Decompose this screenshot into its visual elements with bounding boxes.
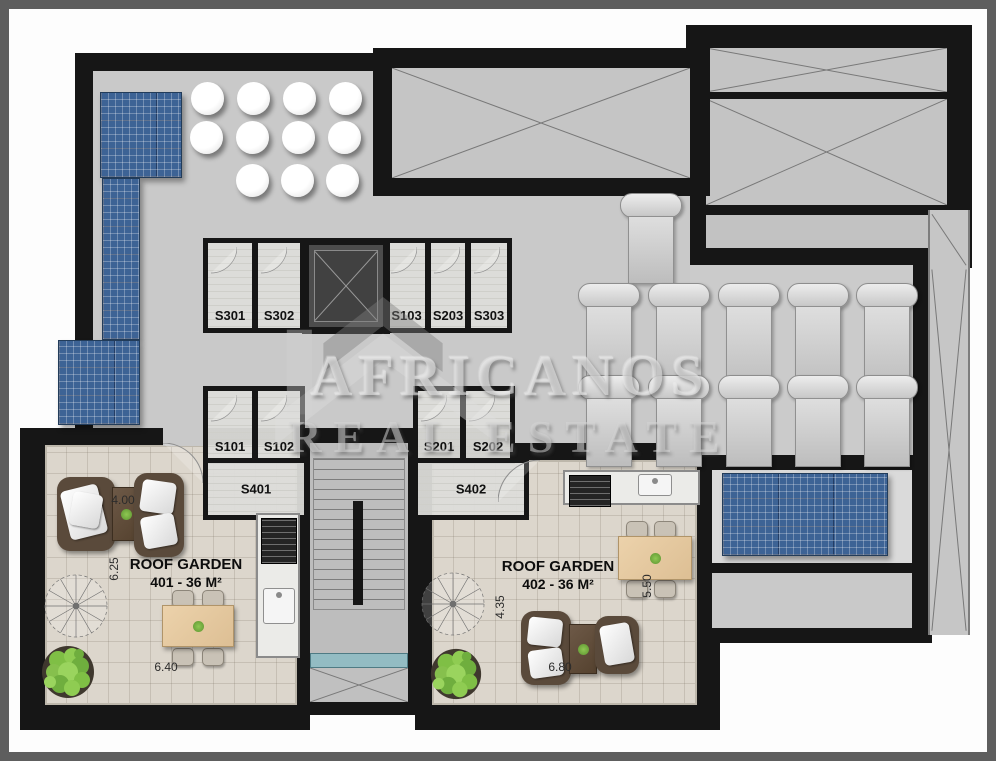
- solar-panel: [722, 473, 888, 556]
- storage-room-s101: S101: [203, 386, 257, 464]
- garden-401-title: ROOF GARDEN 401 - 36 M²: [116, 556, 256, 591]
- solar-panel: [102, 178, 140, 340]
- armchair: [595, 616, 639, 674]
- round-planter: [283, 82, 316, 115]
- sun-lounger: [578, 283, 640, 387]
- room-label: S301: [208, 308, 252, 323]
- elevator-shaft: [302, 238, 390, 334]
- glass-canopy: [310, 653, 408, 668]
- round-planter: [236, 121, 269, 154]
- bbq-grill: [569, 475, 611, 507]
- room-label: S401: [208, 482, 304, 497]
- round-planter: [190, 121, 223, 154]
- sun-lounger: [787, 283, 849, 387]
- storage-room-s103: S103: [383, 238, 430, 333]
- armchair: [57, 477, 115, 551]
- storage-room-s202: S202: [461, 386, 515, 464]
- round-planter: [236, 164, 269, 197]
- solar-enclosure-walkway: [712, 573, 912, 628]
- garden-402-title: ROOF GARDEN 402 - 36 M²: [488, 558, 628, 593]
- storage-room-s401: S401: [203, 458, 309, 520]
- dimension-label: 4.00: [101, 493, 145, 507]
- potted-plant: [427, 645, 485, 701]
- round-planter: [237, 82, 270, 115]
- potted-plant: [38, 642, 98, 700]
- dimension-label: 6.80: [538, 660, 582, 674]
- parasol: [43, 573, 109, 639]
- kitchen-sink: [638, 474, 672, 496]
- room-label: S201: [418, 439, 460, 454]
- door-arc: [498, 460, 540, 502]
- staircase: [310, 443, 408, 653]
- kitchen-sink: [263, 588, 295, 624]
- sun-lounger: [578, 375, 640, 463]
- storage-room-s203: S203: [426, 238, 470, 333]
- dining-table: [618, 536, 692, 580]
- room-label: S303: [471, 308, 507, 323]
- topright-band: [706, 215, 947, 248]
- round-planter: [326, 164, 359, 197]
- storage-room-s301: S301: [203, 238, 257, 333]
- sun-lounger: [856, 283, 918, 387]
- dining-table: [162, 605, 234, 647]
- solar-panel: [100, 92, 182, 178]
- parasol: [420, 571, 486, 637]
- solar-panel: [58, 340, 140, 425]
- floor-plan: S301 S302 S103 S203 S303 S101 S102 S201 …: [0, 0, 996, 761]
- round-planter: [329, 82, 362, 115]
- dimension-label: 6.25: [107, 547, 121, 591]
- dining-chair: [654, 580, 676, 598]
- room-label: S102: [258, 439, 300, 454]
- round-planter: [281, 164, 314, 197]
- bbq-grill: [261, 518, 297, 564]
- door-arc: [163, 443, 203, 483]
- dimension-label: 5.50: [640, 564, 654, 608]
- sun-lounger: [620, 193, 682, 280]
- stair-stringer: [353, 501, 363, 605]
- skylight-xbox: [706, 48, 947, 92]
- room-label: S302: [258, 308, 300, 323]
- skylight-xbox: [392, 68, 690, 178]
- room-label: S202: [466, 439, 510, 454]
- round-planter: [328, 121, 361, 154]
- dining-chair: [202, 648, 224, 666]
- storage-room-s302: S302: [253, 238, 305, 333]
- round-planter: [191, 82, 224, 115]
- sun-lounger: [648, 283, 710, 387]
- cross-braced-walkway: [928, 210, 970, 635]
- dimension-label: 6.40: [144, 660, 188, 674]
- sun-lounger: [787, 375, 849, 463]
- storage-room-s201: S201: [413, 386, 465, 464]
- sun-lounger: [856, 375, 918, 463]
- sun-lounger: [648, 375, 710, 463]
- stair-xbox: [310, 668, 408, 702]
- sun-lounger: [718, 375, 780, 463]
- storage-room-s102: S102: [253, 386, 305, 464]
- sun-lounger: [718, 283, 780, 387]
- room-label: S103: [388, 308, 425, 323]
- skylight-xbox: [706, 99, 947, 205]
- room-label: S203: [431, 308, 465, 323]
- round-planter: [282, 121, 315, 154]
- storage-room-s303: S303: [466, 238, 512, 333]
- room-label: S101: [208, 439, 252, 454]
- dimension-label: 4.35: [493, 585, 507, 629]
- sofa: [134, 473, 184, 557]
